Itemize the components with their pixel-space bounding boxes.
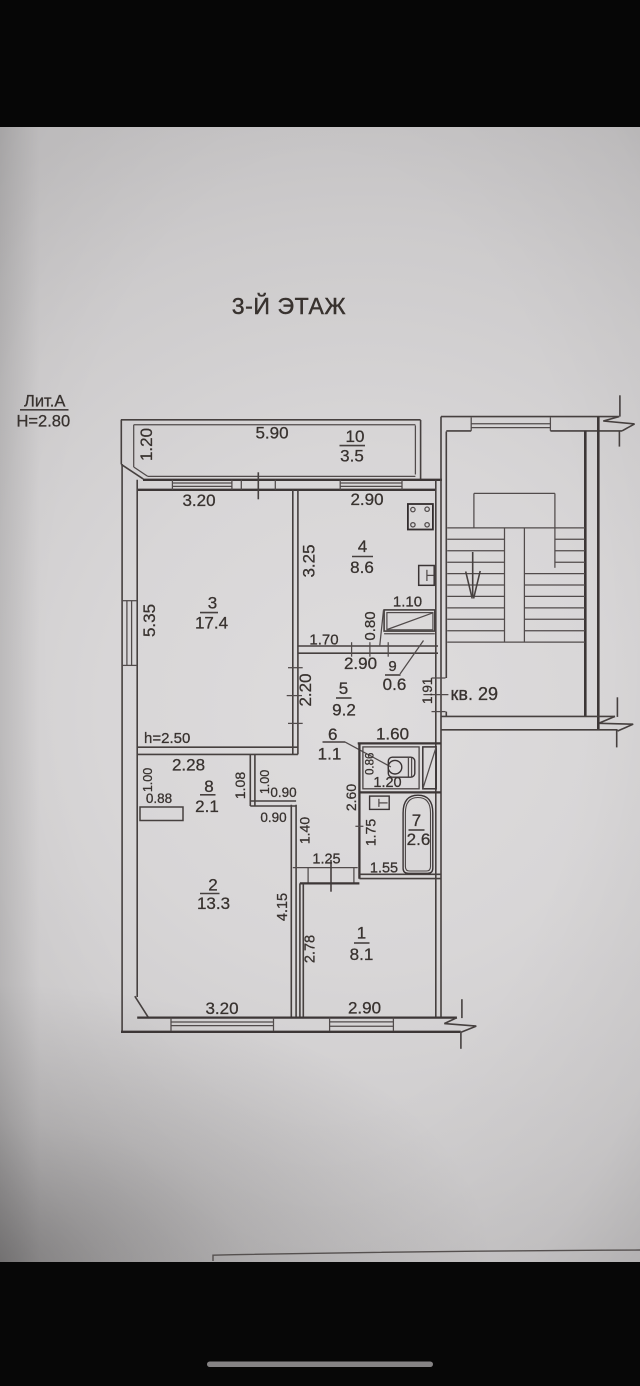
svg-text:h=2.50: h=2.50 — [144, 730, 190, 747]
svg-text:2.90: 2.90 — [350, 490, 383, 509]
svg-text:0.90: 0.90 — [260, 810, 286, 825]
svg-text:1.1: 1.1 — [318, 745, 342, 764]
svg-text:5.35: 5.35 — [140, 604, 159, 637]
svg-text:1.40: 1.40 — [297, 817, 313, 844]
svg-text:4.15: 4.15 — [275, 893, 291, 921]
svg-text:0.86: 0.86 — [364, 753, 376, 775]
svg-text:1.08: 1.08 — [232, 772, 248, 799]
svg-text:2.1: 2.1 — [195, 797, 219, 816]
svg-text:Н=2.80: Н=2.80 — [17, 413, 71, 431]
svg-text:1: 1 — [357, 924, 366, 943]
svg-text:1.60: 1.60 — [376, 725, 409, 744]
svg-text:3-Й ЭТАЖ: 3-Й ЭТАЖ — [232, 292, 347, 319]
svg-text:3.20: 3.20 — [205, 999, 238, 1018]
svg-text:2.90: 2.90 — [344, 654, 377, 673]
svg-text:0.90: 0.90 — [270, 785, 296, 800]
svg-text:8.6: 8.6 — [350, 558, 374, 577]
svg-text:2.60: 2.60 — [343, 784, 359, 811]
svg-text:2: 2 — [208, 876, 217, 895]
svg-text:4: 4 — [358, 537, 367, 556]
svg-text:1.70: 1.70 — [309, 632, 338, 649]
svg-text:0.88: 0.88 — [146, 791, 172, 806]
svg-text:13.3: 13.3 — [197, 894, 230, 913]
svg-text:8.1: 8.1 — [350, 945, 374, 964]
svg-text:9.2: 9.2 — [332, 701, 356, 720]
svg-text:9: 9 — [388, 658, 396, 675]
svg-text:5: 5 — [339, 679, 348, 698]
svg-text:Лит.А: Лит.А — [24, 393, 65, 411]
svg-text:1.10: 1.10 — [393, 594, 422, 611]
svg-text:6: 6 — [328, 725, 337, 744]
svg-text:8: 8 — [204, 777, 213, 796]
svg-text:5.90: 5.90 — [255, 424, 288, 443]
svg-text:1.25: 1.25 — [312, 852, 340, 868]
svg-text:0.80: 0.80 — [362, 611, 379, 640]
svg-text:7: 7 — [412, 811, 421, 830]
svg-text:2.78: 2.78 — [303, 935, 319, 963]
svg-text:2.28: 2.28 — [172, 756, 205, 775]
svg-text:10: 10 — [346, 427, 365, 446]
svg-text:1.75: 1.75 — [362, 819, 378, 846]
svg-text:2.6: 2.6 — [407, 830, 431, 849]
svg-text:3: 3 — [208, 594, 217, 613]
svg-text:3.5: 3.5 — [340, 447, 364, 466]
svg-text:1.00: 1.00 — [141, 768, 155, 792]
svg-text:17.4: 17.4 — [195, 614, 228, 633]
svg-text:3.20: 3.20 — [182, 491, 215, 510]
svg-text:1.91: 1.91 — [420, 678, 435, 704]
svg-text:кв. 29: кв. 29 — [451, 684, 498, 704]
svg-text:3.25: 3.25 — [300, 544, 319, 577]
svg-text:1.20: 1.20 — [373, 775, 401, 791]
svg-text:2.90: 2.90 — [348, 999, 381, 1018]
svg-text:0.6: 0.6 — [383, 675, 407, 694]
svg-text:1.20: 1.20 — [137, 428, 156, 461]
svg-text:2.20: 2.20 — [296, 673, 315, 706]
